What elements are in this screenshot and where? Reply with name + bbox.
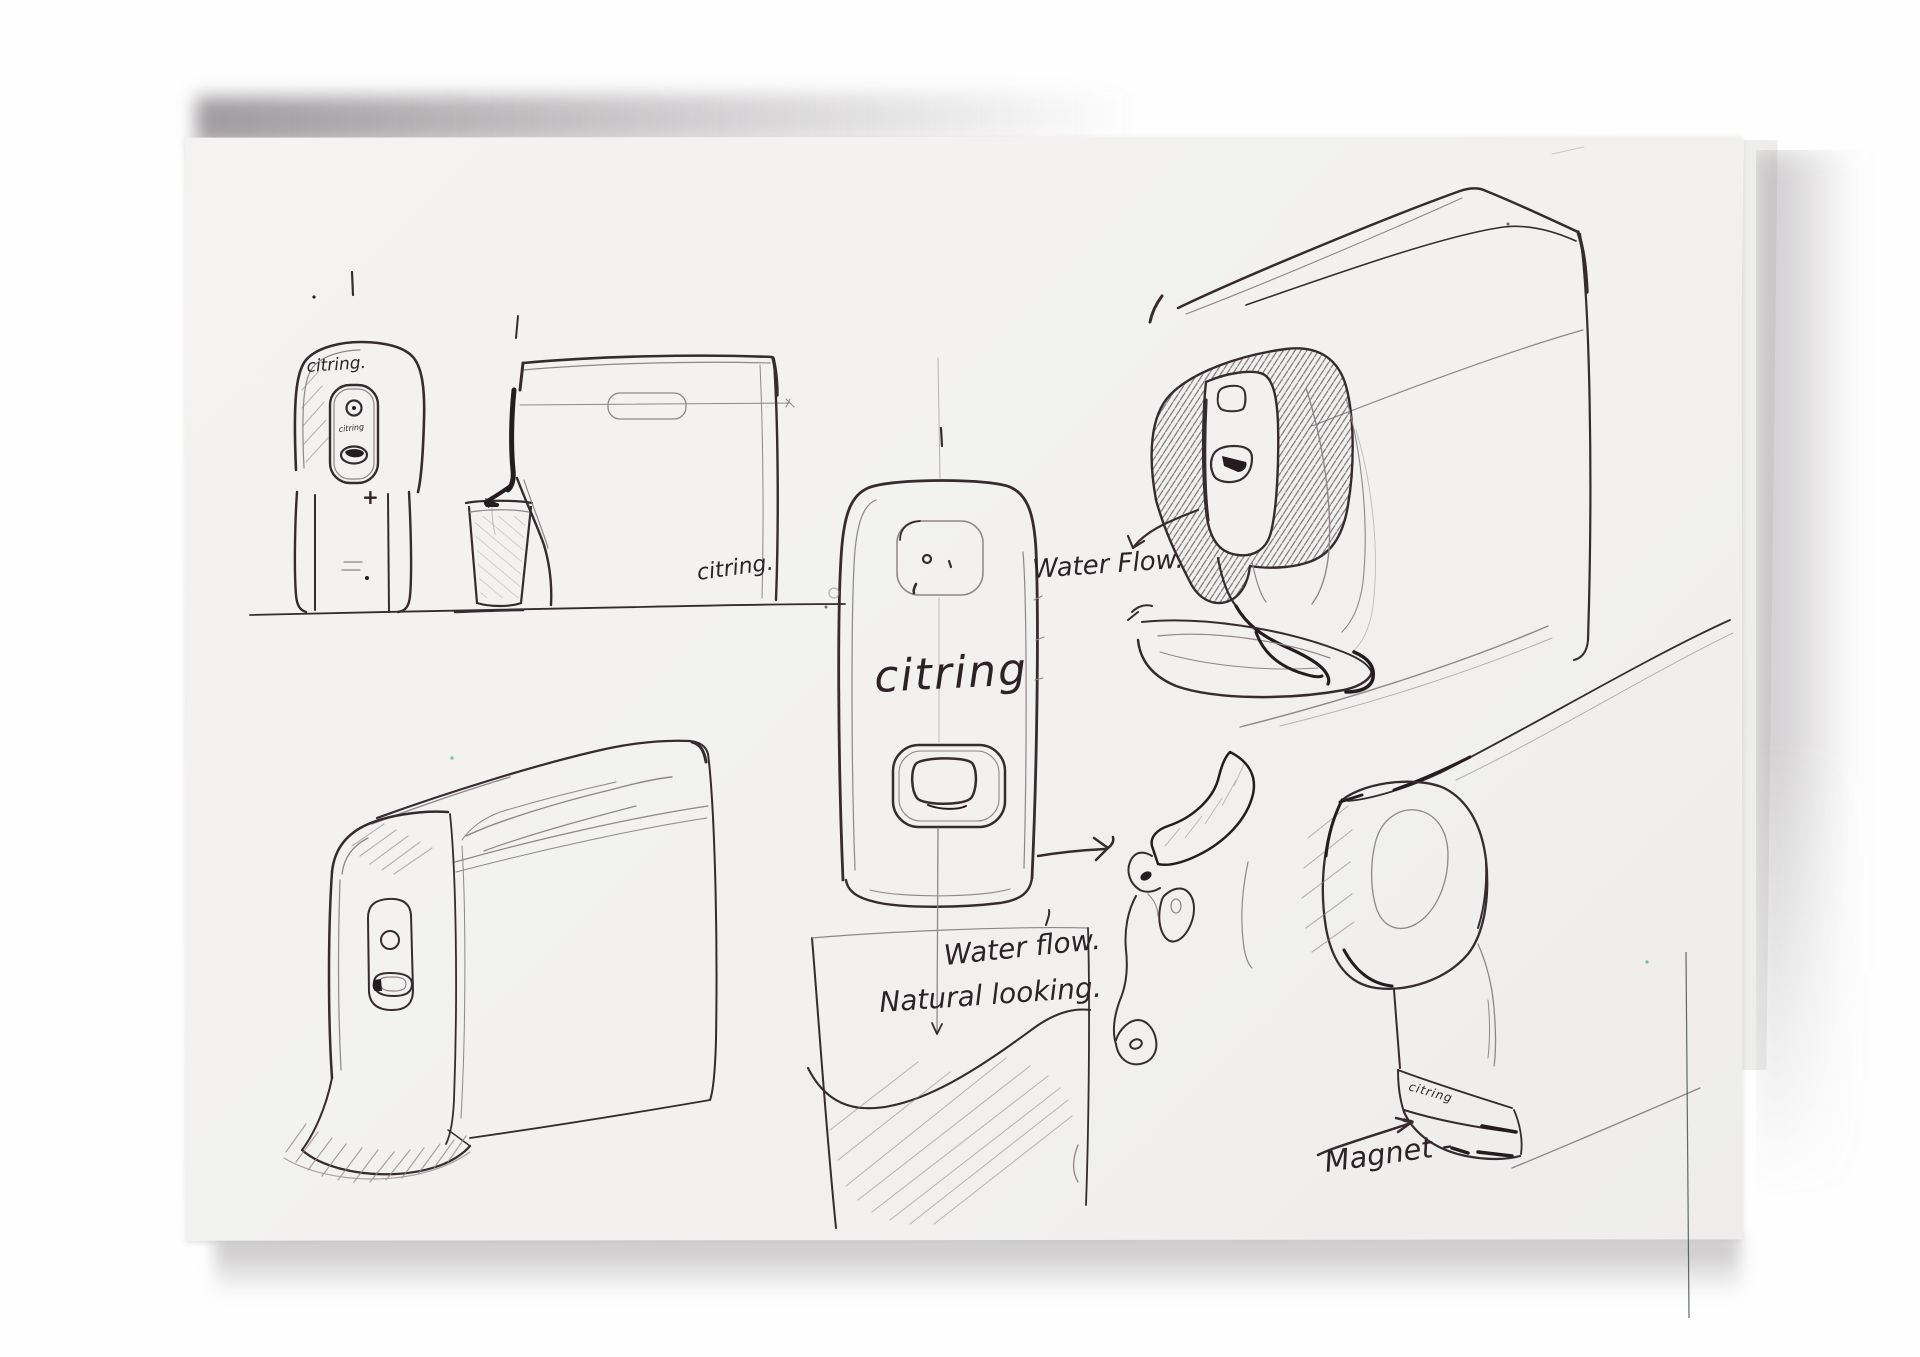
scanned-sketch-page: citring. citring citring. citring citrin…: [0, 0, 1920, 1357]
paper-shadow-bottom: [215, 1238, 1740, 1296]
paper-shadow-right: [1756, 150, 1876, 1230]
paper-sheet: [186, 136, 1743, 1240]
